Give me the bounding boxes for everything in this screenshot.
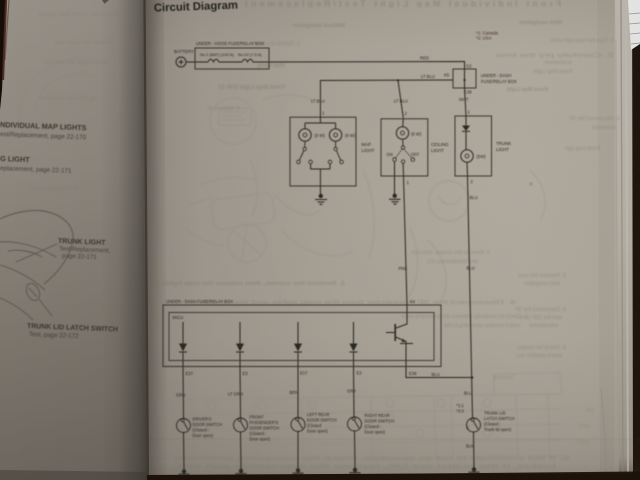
svg-text:BLU: BLU [432,372,440,377]
svg-text:BLU: BLU [464,391,472,396]
svg-text:LATCH SWITCH: LATCH SWITCH [484,416,514,421]
svg-text:1. Turn the map light switc: 1. Turn the map light switc [550,38,614,44]
svg-text:BRN: BRN [290,390,299,395]
svg-text:screwdriver: screwdriver [544,60,572,66]
svg-text:3. Disconnect the 3P: 3. Disconnect the 3P [569,116,620,122]
svg-text:Door open): Door open) [365,430,386,435]
svg-text:Front Map Light: Front Map Light [506,87,548,93]
svg-text:Door open): Door open) [250,437,271,442]
svg-text:5. Check for continuity betwe: 5. Check for continuity between the term… [401,314,528,320]
svg-text:G2: G2 [466,64,472,69]
svg-text:G LIGHT: G LIGHT [0,154,30,164]
svg-text:LT BLU: LT BLU [394,99,408,104]
svg-text:Front map ligh: Front map ligh [565,146,600,152]
svg-text:K5: K5 [444,73,450,78]
svg-text:Remove the screws, then replac: Remove the screws, then replace [38,12,120,18]
svg-text:LT GRN: LT GRN [228,392,243,397]
svg-text:TRUNK LID: TRUNK LID [484,411,506,416]
svg-text:microphone: microphone [529,323,558,329]
svg-text:*2: USA: *2: USA [476,36,492,41]
svg-text:*1:1: *1:1 [457,403,465,408]
svg-text:DOOR SWITCH: DOOR SWITCH [307,418,337,423]
svg-text:Door open): Door open) [193,433,214,438]
svg-text:rid, then disconnect the: rid, then disconnect the [39,96,96,102]
svg-text:(8 W): (8 W) [315,133,326,138]
svg-text:UNDER - DASH FUSE/RELAY BOX: UNDER - DASH FUSE/RELAY BOX [166,299,233,304]
svg-text:(8 W): (8 W) [345,133,356,138]
svg-text:DOOR SWITCH: DOOR SWITCH [193,422,223,427]
svg-text:FRONT: FRONT [250,415,265,420]
svg-text:BLU: BLU [470,195,478,200]
svg-text:OFF: OFF [578,424,590,430]
svg-text:MAP: MAP [362,142,372,147]
svg-text:OFF: OFF [411,152,420,157]
svg-text:FUSE/RELAY BOX: FUSE/RELAY BOX [481,79,517,84]
svg-text:2. Carefully pry the lens: 2. Carefully pry the lens [495,53,614,59]
svg-text:UNDER - HOOD FUSE/RELAY BOX: UNDER - HOOD FUSE/RELAY BOX [196,41,264,46]
svg-text:4. Disconnect the 3P: 4. Disconnect the 3P [515,307,566,313]
svg-text:5. Check for continu: 5. Check for continu [517,345,566,351]
svg-text:PNK: PNK [399,266,408,271]
svg-text:(5W): (5W) [477,154,487,159]
svg-text:With navigation: With navigation [518,20,562,26]
svg-text:BLK: BLK [466,444,474,449]
svg-text:Trunk lid open): Trunk lid open) [484,427,512,432]
svg-text:LT BLU: LT BLU [421,74,435,79]
svg-text:DRIVER'S: DRIVER'S [193,417,212,422]
svg-text:(Closed :: (Closed : [193,428,209,433]
svg-text:DOOR SWITCH: DOOR SWITCH [250,426,280,431]
svg-text:RIGHT REAR: RIGHT REAR [365,413,390,418]
svg-text:K4: K4 [410,299,416,304]
svg-text:ON: ON [586,408,594,414]
svg-text:TRUNK: TRUNK [496,141,511,146]
svg-text:2. Remove the scre: 2. Remove the scre [518,273,566,279]
svg-text:No.1 (BAT) (100 A): No.1 (BAT) (100 A) [200,52,234,57]
svg-text:LIGHT: LIGHT [496,147,509,152]
svg-text:Remove the mirror less: Remove the mirror less [55,40,112,46]
svg-text:Without navigation: Without navigation [292,23,345,29]
svg-text:connector: connector [592,125,616,131]
svg-text:(8 W): (8 W) [411,132,422,137]
svg-text:PASSENGER'S: PASSENGER'S [250,420,279,425]
svg-text:CEILING: CEILING [431,142,449,147]
svg-text:E17: E17 [300,371,308,376]
svg-text:E3: E3 [243,371,249,376]
svg-text:E3: E3 [357,371,363,376]
svg-text:2. Remove the screws, then re: 2. Remove the screws, then remove the ma… [149,281,345,287]
svg-text:and headphones (C): and headphones (C) [428,259,478,265]
svg-text:LIGHT: LIGHT [431,148,444,153]
svg-text:Front Map Light: Front Map Light [533,69,572,75]
svg-text:(Closed: (Closed [307,423,322,428]
svg-text:BLU: BLU [467,266,475,271]
svg-text:LT BLU: LT BLU [311,99,325,104]
svg-text:switch position according to t: switch position according to the [444,323,520,329]
svg-text:GRY: GRY [347,389,356,394]
svg-text:(Closed :: (Closed : [484,422,500,427]
svg-text:E38: E38 [409,371,417,376]
svg-text:E37: E37 [186,371,194,376]
svg-text:(Closed :: (Closed : [250,431,266,436]
svg-text:(Closed :: (Closed : [365,424,381,429]
svg-text:LEFT: LEFT [576,440,590,446]
svg-text:Front Map Light S/W 22: Front Map Light S/W 22 [218,85,285,91]
svg-text:*2:3: *2:3 [457,409,465,414]
svg-text:Pry the lights and unlocks: Pry the lights and unlocks [45,60,108,66]
svg-text:BATTERY: BATTERY [174,49,194,54]
svg-text:switch position acc: switch position acc [516,353,562,359]
svg-text:LIGHT: LIGHT [362,148,375,153]
svg-text:and navigation: and navigation [524,281,560,287]
svg-text:RED: RED [420,56,429,61]
svg-text:and the 12P conn: and the 12P conn [519,315,562,321]
svg-text:MICU: MICU [173,315,184,320]
svg-text:Remove the screws: Remove the screws [29,186,78,192]
svg-text:bulbst, If the bulbst are OK,: bulbst, If the bulbst are OK, replace th… [177,464,556,470]
svg-text:No.22 (7.5 A): No.22 (7.5 A) [238,52,262,57]
svg-text:With navig: With navig [257,63,285,69]
svg-text:2. Remove the screws, then re: 2. Remove the screws, then rem [410,250,490,256]
svg-text:Door open): Door open) [307,429,328,434]
svg-text:ON: ON [387,152,393,157]
svg-text:Terminal: Terminal [493,375,514,381]
svg-text:GRN: GRN [176,393,185,398]
svg-text:UNDER - DASH: UNDER - DASH [481,73,511,78]
svg-text:LEFT REAR: LEFT REAR [307,412,329,417]
svg-text:DOOR SWITCH: DOOR SWITCH [365,419,395,424]
svg-text:WHT: WHT [459,97,469,102]
